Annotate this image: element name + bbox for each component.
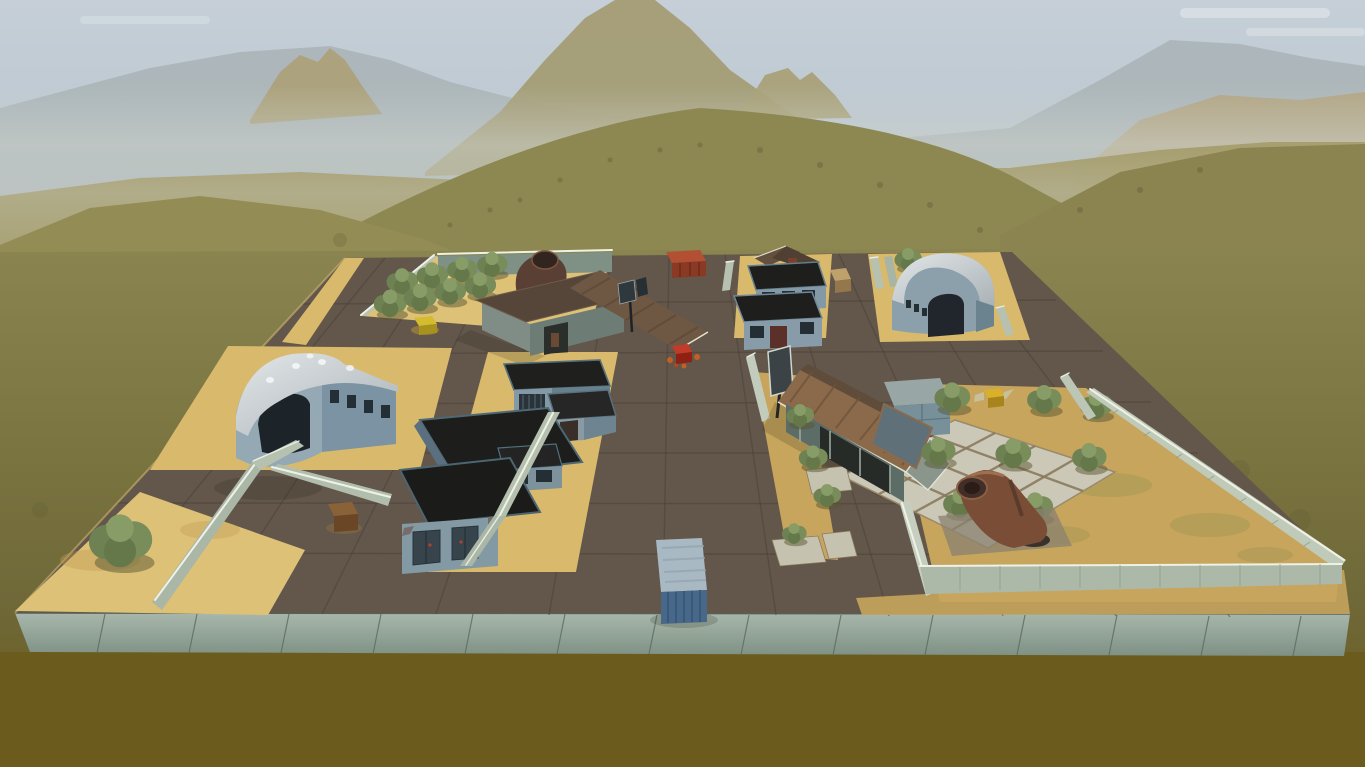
ground-bottom-strip [0,652,1365,767]
game-viewport[interactable] [0,0,1365,767]
scene-3d [0,0,1365,767]
container-red [666,250,706,278]
flat-roof-building-front [734,292,822,350]
